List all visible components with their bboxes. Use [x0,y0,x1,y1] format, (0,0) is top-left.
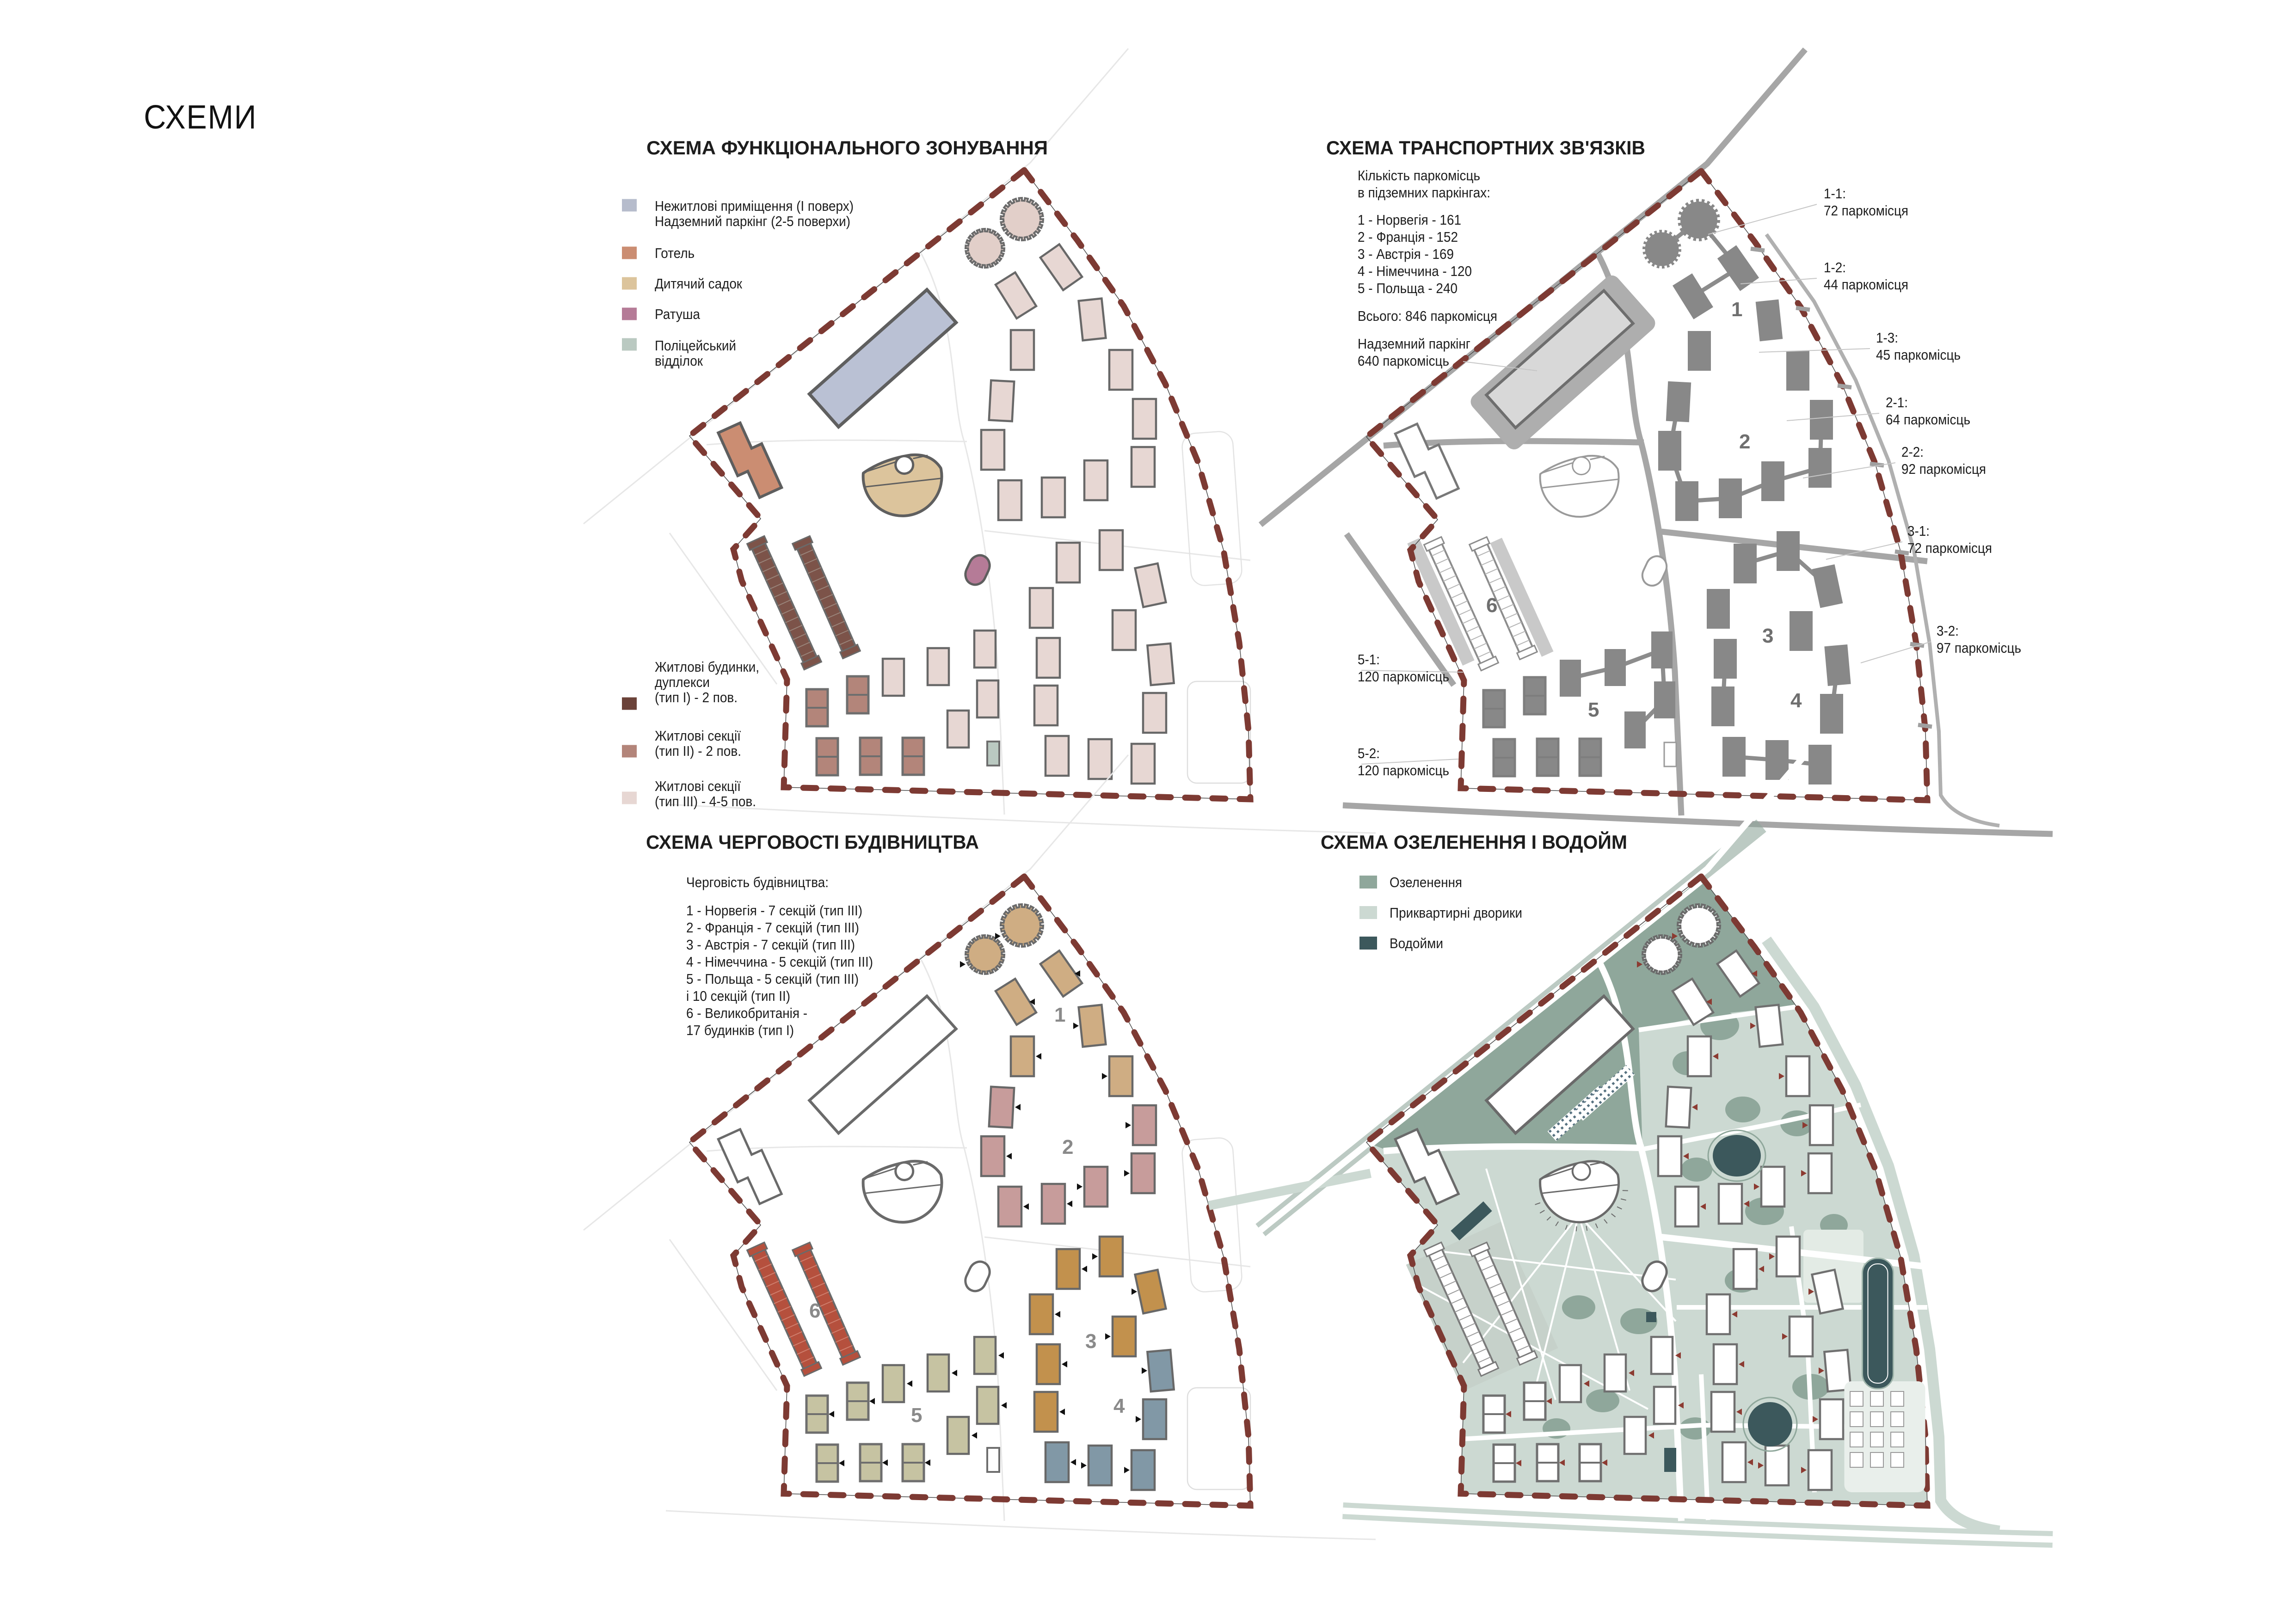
svg-text:(тип ІІІ) - 4-5 пов.: (тип ІІІ) - 4-5 пов. [655,793,756,809]
svg-text:97 паркомісць: 97 паркомісць [1937,640,2021,656]
svg-text:4: 4 [1790,689,1802,712]
svg-text:Дитячий садок: Дитячий садок [655,276,742,292]
svg-text:Кількість паркомісць: Кількість паркомісць [1358,167,1480,184]
svg-text:6: 6 [1486,594,1497,617]
svg-text:72 паркомісця: 72 паркомісця [1824,202,1908,219]
svg-text:Житлові секції: Житлові секції [655,778,741,794]
svg-text:3 - Австрія - 169: 3 - Австрія - 169 [1358,246,1454,262]
svg-text:44 паркомісця: 44 паркомісця [1824,276,1908,293]
svg-text:45 паркомісць: 45 паркомісць [1876,347,1961,363]
svg-text:64 паркомісць: 64 паркомісць [1886,411,1970,428]
svg-text:2-1:: 2-1: [1886,394,1908,411]
svg-text:Надземний паркінг (2-5 поверхи: Надземний паркінг (2-5 поверхи) [655,213,850,229]
svg-text:4 - Німеччина - 5 секцій (тип: 4 - Німеччина - 5 секцій (тип ІІІ) [686,954,873,970]
svg-text:92 паркомісця: 92 паркомісця [1901,461,1986,477]
svg-text:СХЕМА ОЗЕЛЕНЕННЯ І ВОДОЙМ: СХЕМА ОЗЕЛЕНЕННЯ І ВОДОЙМ [1321,831,1627,853]
svg-text:Всього: 846 паркомісця: Всього: 846 паркомісця [1358,308,1497,324]
svg-text:3: 3 [1085,1330,1096,1353]
svg-text:5 - Польща - 240: 5 - Польща - 240 [1358,280,1458,296]
svg-text:Надземний паркінг: Надземний паркінг [1358,336,1470,352]
svg-text:відділок: відділок [655,353,703,369]
svg-text:Нежитлові приміщення (І поверх: Нежитлові приміщення (І поверх) [655,198,854,214]
svg-text:1 - Норвегія - 161: 1 - Норвегія - 161 [1358,212,1461,228]
svg-text:3: 3 [1762,625,1773,647]
svg-text:Приквартирні дворики: Приквартирні дворики [1390,905,1522,921]
svg-text:2 - Франція - 7 секцій (тип ІІ: 2 - Франція - 7 секцій (тип ІІІ) [686,919,859,936]
svg-text:Ратуша: Ратуша [655,306,701,322]
svg-text:СХЕМА ФУНКЦІОНАЛЬНОГО ЗОНУВАНН: СХЕМА ФУНКЦІОНАЛЬНОГО ЗОНУВАННЯ [646,137,1048,159]
svg-text:1: 1 [1731,298,1742,321]
svg-text:5: 5 [911,1404,922,1427]
svg-text:1-3:: 1-3: [1876,330,1898,346]
svg-text:6: 6 [809,1299,820,1322]
svg-text:дуплекси: дуплекси [655,674,710,690]
svg-text:5-1:: 5-1: [1358,651,1380,668]
svg-text:СХЕМА ЧЕРГОВОСТІ БУДІВНИЦТВА: СХЕМА ЧЕРГОВОСТІ БУДІВНИЦТВА [646,831,979,853]
svg-text:6 - Великобританія -: 6 - Великобританія - [686,1005,807,1021]
svg-text:17 будинків (тип І): 17 будинків (тип І) [686,1022,794,1038]
svg-text:120 паркомісць: 120 паркомісць [1358,668,1449,685]
svg-text:5-2:: 5-2: [1358,745,1380,761]
svg-text:72 паркомісця: 72 паркомісця [1907,540,1992,556]
svg-text:Житлові секції: Житлові секції [655,728,741,744]
svg-text:1-1:: 1-1: [1824,185,1846,202]
svg-text:СХЕМИ: СХЕМИ [144,99,257,136]
svg-text:(тип І) - 2 пов.: (тип І) - 2 пов. [655,689,738,705]
svg-text:5 - Польща - 5 секцій (тип ІІІ: 5 - Польща - 5 секцій (тип ІІІ) [686,971,859,987]
svg-text:Поліцейський: Поліцейський [655,337,736,354]
svg-text:Черговість будівництва:: Черговість будівництва: [686,874,829,890]
svg-text:2-2:: 2-2: [1901,444,1924,460]
svg-text:в підземних паркінгах:: в підземних паркінгах: [1358,184,1490,201]
svg-text:і 10 секцій (тип ІІ): і 10 секцій (тип ІІ) [686,988,790,1004]
svg-text:Готель: Готель [655,245,695,261]
svg-text:Водойми: Водойми [1390,935,1443,951]
svg-text:2: 2 [1062,1136,1073,1158]
svg-text:3-1:: 3-1: [1907,523,1930,539]
svg-text:4: 4 [1113,1395,1125,1417]
svg-text:5: 5 [1588,699,1599,721]
svg-text:1 - Норвегія - 7 секцій (тип І: 1 - Норвегія - 7 секцій (тип ІІІ) [686,902,862,919]
svg-text:3-2:: 3-2: [1937,623,1959,639]
svg-text:4 - Німеччина - 120: 4 - Німеччина - 120 [1358,263,1472,279]
svg-text:2 - Франція - 152: 2 - Франція - 152 [1358,229,1458,245]
svg-text:3 - Австрія - 7 секцій (тип ІІ: 3 - Австрія - 7 секцій (тип ІІІ) [686,937,855,953]
svg-text:Житлові будинки,: Житлові будинки, [655,659,759,675]
svg-text:120 паркомісць: 120 паркомісць [1358,762,1449,778]
svg-text:(тип ІІ) - 2 пов.: (тип ІІ) - 2 пов. [655,743,741,759]
svg-text:640 паркомісць: 640 паркомісць [1358,353,1449,369]
svg-text:Озеленення: Озеленення [1390,874,1462,890]
svg-text:1: 1 [1054,1004,1065,1026]
svg-text:2: 2 [1739,430,1750,453]
svg-text:СХЕМА ТРАНСПОРТНИХ ЗВ'ЯЗКІВ: СХЕМА ТРАНСПОРТНИХ ЗВ'ЯЗКІВ [1326,137,1645,159]
svg-text:1-2:: 1-2: [1824,259,1846,276]
